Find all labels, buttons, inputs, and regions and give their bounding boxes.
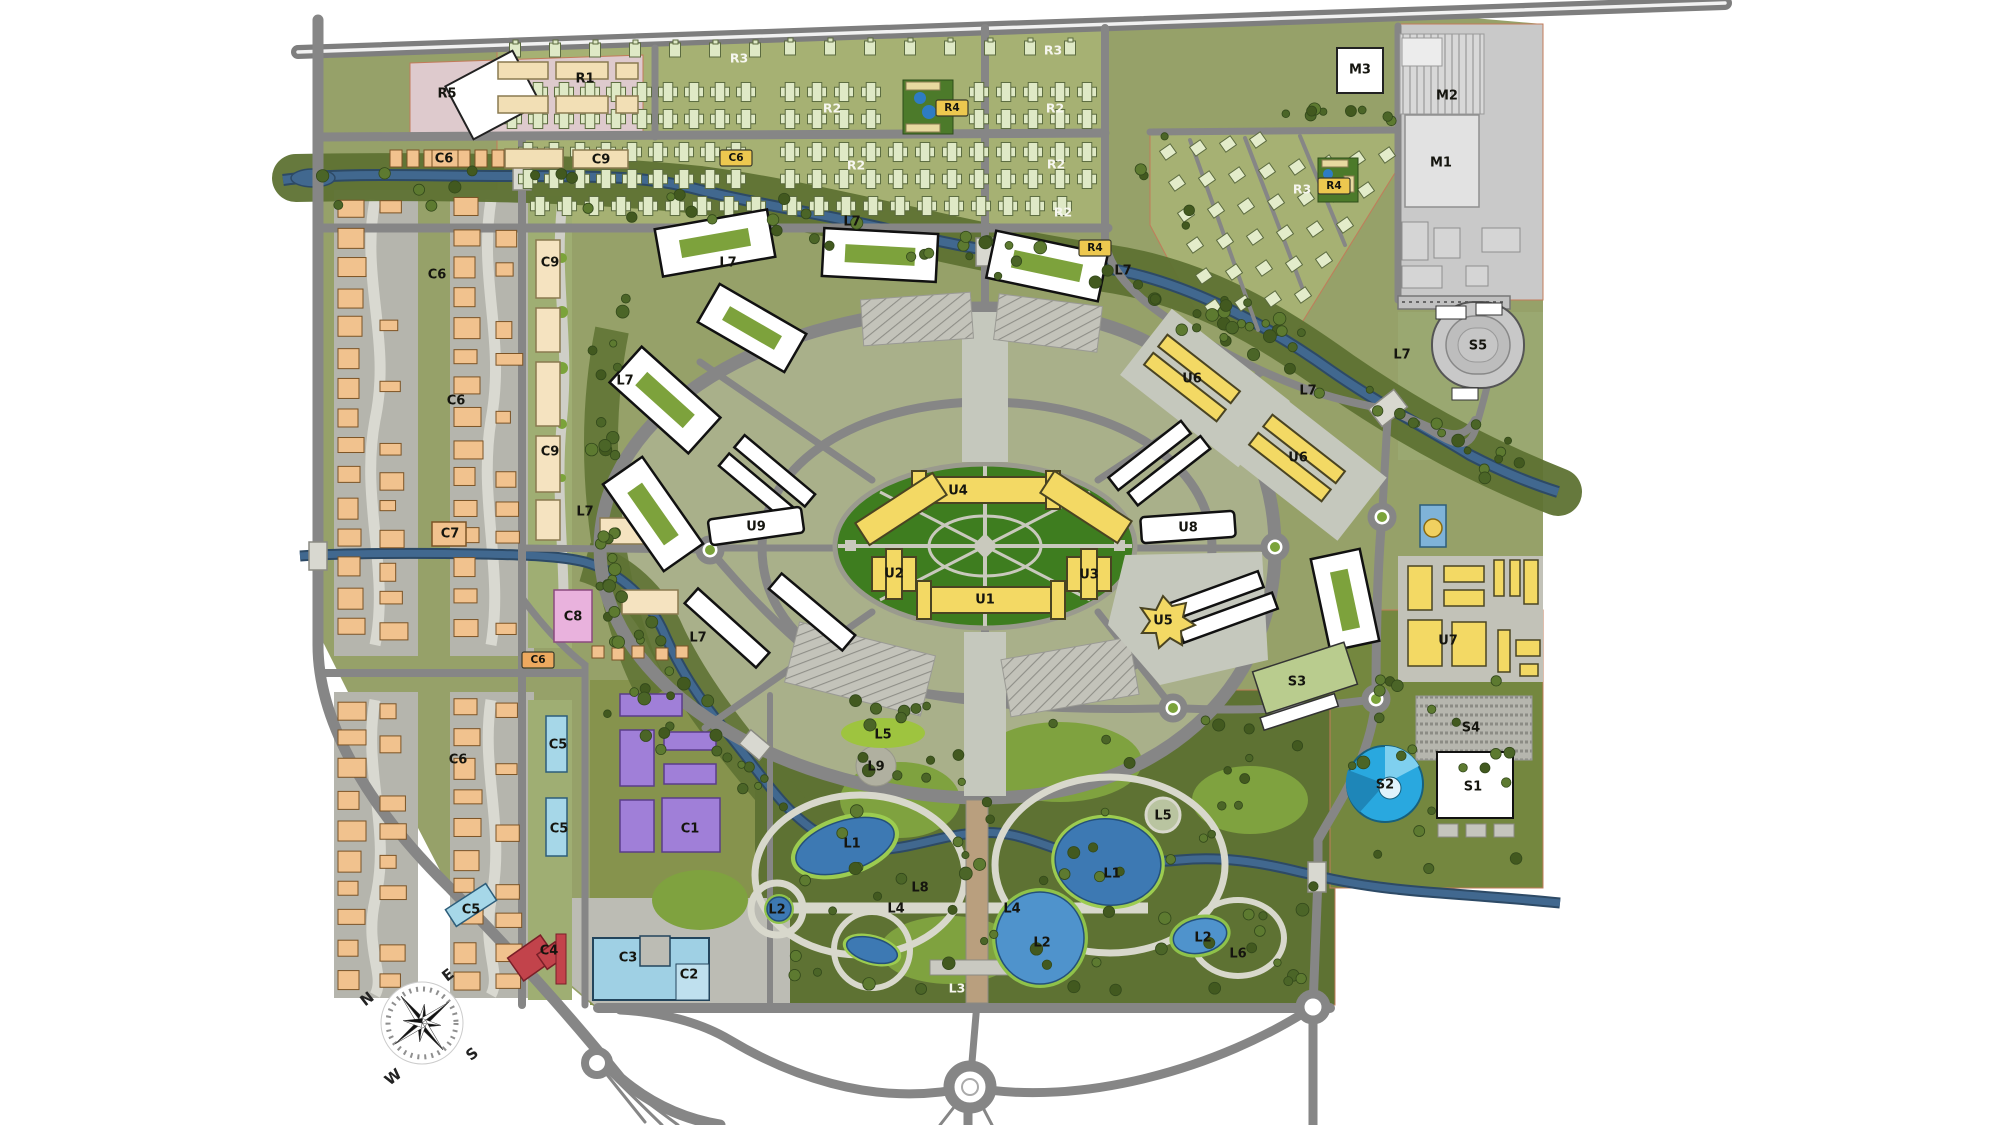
zone-label-u8-44: U8 [1178,521,1198,536]
building-c6 [454,467,475,485]
building-c6 [380,824,406,839]
tree [1273,312,1286,325]
tree [1089,276,1101,288]
building-c6 [458,150,470,167]
zone-label-c9-21: C9 [541,256,560,271]
house [670,40,681,57]
building-c6 [496,623,516,634]
building-c6 [380,974,400,987]
tree [599,439,611,451]
tree [1133,280,1142,289]
zone-label-l1-59: L1 [843,837,860,852]
building-r1 [556,96,608,113]
tree [1034,241,1047,254]
tree [1124,757,1135,768]
zone-label-l7-41: L7 [1299,384,1316,399]
bridge [309,542,327,570]
zone-label-m3-16: M3 [1349,63,1371,78]
tree [1438,429,1446,437]
building-c6 [475,150,487,167]
tree [1408,745,1417,754]
building-c6 [338,557,360,576]
tree [906,252,915,261]
zone-label-r2-8: R2 [1046,101,1064,116]
tree [980,937,987,944]
zone-label-r4-12: R4 [944,102,959,114]
zone-label-c4-32: C4 [540,944,559,959]
tree [379,168,390,179]
zone-label-s2-55: S2 [1376,778,1394,793]
zone-label-r3-5: R3 [730,51,748,66]
tree [1262,320,1270,328]
zone-label-r3-14: R3 [1293,182,1311,197]
tree [1220,333,1228,341]
compass-letter-w: W [381,1065,405,1090]
building-c6 [496,531,519,543]
building-c9-tower [536,362,560,426]
tree [959,867,972,880]
tree [744,762,754,772]
building-r1 [616,63,638,79]
zone-label-r5-0: R5 [437,87,456,102]
tree [1263,330,1276,343]
building-c6 [592,646,604,658]
tree [1166,855,1176,865]
building-r1 [498,62,548,79]
roundabout-main [949,1066,991,1108]
tree [924,248,934,258]
tree [896,873,907,884]
zone-label-u9-43: U9 [746,520,766,535]
zone-label-c1-30: C1 [681,822,700,837]
tree [1209,982,1221,994]
tree [723,753,732,762]
tree [616,305,629,318]
building-c6 [338,466,360,482]
tree [1199,834,1207,842]
building-c6 [338,316,362,336]
tree [1005,241,1013,249]
tree [960,231,971,242]
tree [1159,912,1171,924]
tree [596,370,606,380]
tree [1292,741,1302,751]
zone-label-r2-10: R2 [1047,157,1065,172]
house [750,40,761,57]
building-c9-tower [536,500,560,540]
tree [760,775,768,783]
building-c6 [338,618,365,634]
building-c6 [454,377,480,394]
building-c6 [454,230,480,246]
building-c6 [338,289,363,308]
tree [1208,830,1216,838]
tree [953,837,963,847]
tree [1392,680,1404,692]
tree [1374,685,1385,696]
roundabout [585,1051,609,1075]
zone-label-l3-69: L3 [949,981,966,996]
tree [829,907,837,915]
tree [1464,447,1471,454]
tree [1182,222,1190,230]
building-c6 [338,529,361,546]
zone-label-l7-36: L7 [719,256,736,271]
tree [1414,826,1425,837]
compass-letter-s: S [462,1044,482,1065]
tree [1282,110,1290,118]
building-c6 [454,441,483,459]
tree [809,234,819,244]
tree [800,875,811,886]
building-c6 [454,589,477,603]
tree [870,703,881,714]
tree [630,688,639,697]
building-c6 [380,591,402,604]
tree [813,968,821,976]
tree [1394,408,1405,419]
house [985,38,996,55]
building-c9-tower [536,308,560,352]
tree [1504,747,1515,758]
tree [1510,853,1522,865]
tree [598,531,609,542]
tree [1110,984,1122,996]
tree [850,695,862,707]
tree [1224,767,1232,775]
building-c6 [380,320,398,330]
building-c6 [492,150,504,167]
tree [609,606,620,617]
building-c6 [338,909,365,924]
tree [1192,324,1200,332]
building-c6 [380,796,405,811]
tree [1234,801,1242,809]
zone-label-u4-45: U4 [948,484,968,499]
building-c6 [380,473,404,490]
tree [916,983,927,994]
tree [449,181,461,193]
tree [801,209,811,219]
tree [1088,843,1097,852]
building-c6 [380,563,396,581]
building-c6 [496,825,519,841]
tree [896,712,907,723]
zone-label-l5-68: L5 [1154,809,1171,824]
building-c6 [338,588,363,609]
tree [1244,299,1252,307]
tree [1161,133,1168,140]
zone-label-c5-28: C5 [549,738,568,753]
zone-label-r2-11: R2 [1054,205,1072,220]
s1-annex [1438,824,1514,837]
tree [990,930,998,938]
tree [974,858,986,870]
building-c6 [380,201,401,213]
tree [585,443,598,456]
tree [962,851,969,858]
building-c6 [496,502,519,516]
tree [1176,324,1188,336]
tree [738,761,745,768]
tree [1246,754,1253,761]
tree [1011,256,1021,266]
building-c6 [496,913,522,927]
building-c6 [454,500,477,516]
building-r1 [616,96,638,113]
tree [1103,906,1114,917]
zone-label-c9-2: C9 [592,153,611,168]
building-c3-notch [640,936,670,966]
zone-label-l9-58: L9 [867,760,884,775]
zone-label-c7-24: C7 [441,527,460,542]
tree [426,200,437,211]
tree [893,771,902,780]
building-c6 [496,764,517,775]
building-c6 [454,197,478,215]
building-c6 [380,501,396,511]
zone-label-l2-61: L2 [768,903,785,918]
tree [789,969,800,980]
house [630,40,641,57]
tree [1296,903,1309,916]
tree [613,363,621,371]
zone-label-c6-27: C6 [449,753,468,768]
tree [667,193,675,201]
zone-label-s1-56: S1 [1464,780,1482,795]
house [590,40,601,57]
zone-label-r4-13: R4 [1087,242,1102,254]
house [785,38,796,55]
tree [755,782,762,789]
tree [667,692,675,700]
building-c6 [380,704,396,719]
tree [1284,977,1293,986]
tree [1201,716,1210,725]
tree [994,272,1002,280]
building-c6 [496,263,513,276]
zone-label-l5-57: L5 [874,728,891,743]
tree [556,168,567,179]
tree [1374,713,1384,723]
building-c6 [454,257,475,278]
tree [1372,406,1383,417]
masterplan-map: NESW R5R1C9C6C6R3R3R2R2R2R2R2R4R4R3R4M3M… [0,0,2000,1125]
zone-label-l4-63: L4 [887,902,904,917]
house [550,40,561,57]
tree [334,200,343,209]
building-c6 [380,381,400,391]
zone-label-l7-39: L7 [689,631,706,646]
tree [1254,926,1265,937]
tree [779,193,790,204]
zone-label-l2-66: L2 [1194,931,1211,946]
parking-lot [861,292,974,346]
tree [414,184,425,195]
building-c6 [454,407,481,426]
zone-label-s5-19: S5 [1469,339,1487,354]
house [1025,38,1036,55]
tree [825,241,834,250]
building-c6 [380,736,401,753]
tree [1491,676,1501,686]
tree [790,950,801,961]
zone-label-l7-37: L7 [616,374,633,389]
building-c6 [338,791,359,809]
tree [922,773,931,782]
zone-label-l4-64: L4 [1003,902,1020,917]
building-c4-bar [556,934,566,984]
house [945,38,956,55]
tree [702,695,714,707]
tree [779,803,787,811]
tree [1247,943,1257,953]
tree [1245,322,1254,331]
building-c6 [338,851,361,872]
tree [1452,718,1460,726]
building-c6 [454,699,477,715]
zone-label-r2-9: R2 [847,158,865,173]
tree [612,636,625,649]
tree [923,702,931,710]
tree [1284,363,1295,374]
tree [1348,762,1356,770]
zone-label-l7-42: L7 [1393,348,1410,363]
tree [849,862,861,874]
tree [1358,106,1366,114]
tree [1514,458,1524,468]
building-c6 [454,972,480,990]
building-c6 [454,851,479,871]
zone-label-c9-23: C9 [541,445,560,460]
tree [638,692,651,705]
tree [1193,310,1201,318]
building-c6 [496,472,516,487]
tree [1366,386,1373,393]
tree [1240,774,1250,784]
building-c6 [454,878,474,892]
building-c6 [496,354,523,366]
tree [712,746,722,756]
tree [873,892,881,900]
tree [566,172,577,183]
tree [1375,675,1385,685]
building-c6 [380,443,401,455]
zone-label-u6-50: U6 [1182,372,1202,387]
zone-label-l7-38: L7 [576,505,593,520]
tree [1459,763,1468,772]
tree [1220,300,1232,312]
masterplan-svg: NESW R5R1C9C6C6R3R3R2R2R2R2R2R4R4R3R4M3M… [0,0,2000,1125]
tree [1427,705,1435,713]
building-c6 [380,945,405,961]
building-c6 [632,646,644,658]
tree [1049,719,1058,728]
zone-label-r1-1: R1 [575,72,594,87]
tree [1155,943,1167,955]
tree [1276,326,1287,337]
road-axis-south [972,1003,977,1062]
building-c6 [338,730,366,745]
building-c6 [496,974,521,988]
tree [1357,756,1370,769]
tree [707,215,717,225]
tree [1259,912,1267,920]
tree [1431,418,1442,429]
tree [677,677,690,690]
building-c6 [454,288,475,307]
zone-label-c6-26: C6 [530,654,545,666]
zone-label-c8-25: C8 [564,610,583,625]
zone-label-c6-4: C6 [728,152,743,164]
zone-label-c2-34: C2 [680,968,699,983]
tree [1288,343,1297,352]
building-c6 [338,349,359,369]
roundabout [1300,994,1326,1020]
tree [1068,981,1080,993]
tree [1428,807,1436,815]
zone-label-u5-49: U5 [1153,614,1173,629]
tree [1068,847,1080,859]
zone-label-m2-17: M2 [1436,89,1458,104]
tree [621,294,630,303]
building-c6 [338,881,358,895]
tree [1452,434,1465,447]
zone-label-s3-53: S3 [1288,675,1306,690]
tree [646,616,658,628]
building-r1 [498,96,548,113]
tree [634,630,643,639]
tree [1501,778,1510,787]
zone-label-l7-40: L7 [1114,264,1131,279]
zone-label-l8-62: L8 [911,881,928,896]
roundabout [1371,506,1393,528]
tree [604,710,612,718]
zone-label-m1-18: M1 [1430,156,1452,171]
tree [530,171,539,180]
tree [771,225,782,236]
building-c6 [454,620,478,637]
building-c6 [656,648,668,660]
tree [588,346,597,355]
tree [1383,112,1393,122]
building-c6 [407,150,419,167]
building-c6 [338,702,366,720]
tree [958,778,965,785]
tree [738,783,748,793]
building-c6 [338,498,358,519]
building-c6 [380,886,406,900]
zone-label-u2-46: U2 [884,567,904,582]
house [1065,38,1076,55]
zone-label-r3-6: R3 [1044,43,1062,58]
zone-label-r4-15: R4 [1326,180,1341,192]
zone-label-l2-65: L2 [1033,936,1050,951]
building-c6 [338,228,364,248]
tree [1213,719,1225,731]
tree [1042,960,1051,969]
tree [316,170,328,182]
building-c6 [454,558,475,577]
building-c6 [380,530,404,547]
tree [1296,973,1306,983]
building-c6 [496,885,519,899]
building-c6 [338,821,366,841]
building-c6 [454,943,476,964]
zone-label-c3-33: C3 [619,951,638,966]
tree [610,340,617,347]
tree [986,815,995,824]
